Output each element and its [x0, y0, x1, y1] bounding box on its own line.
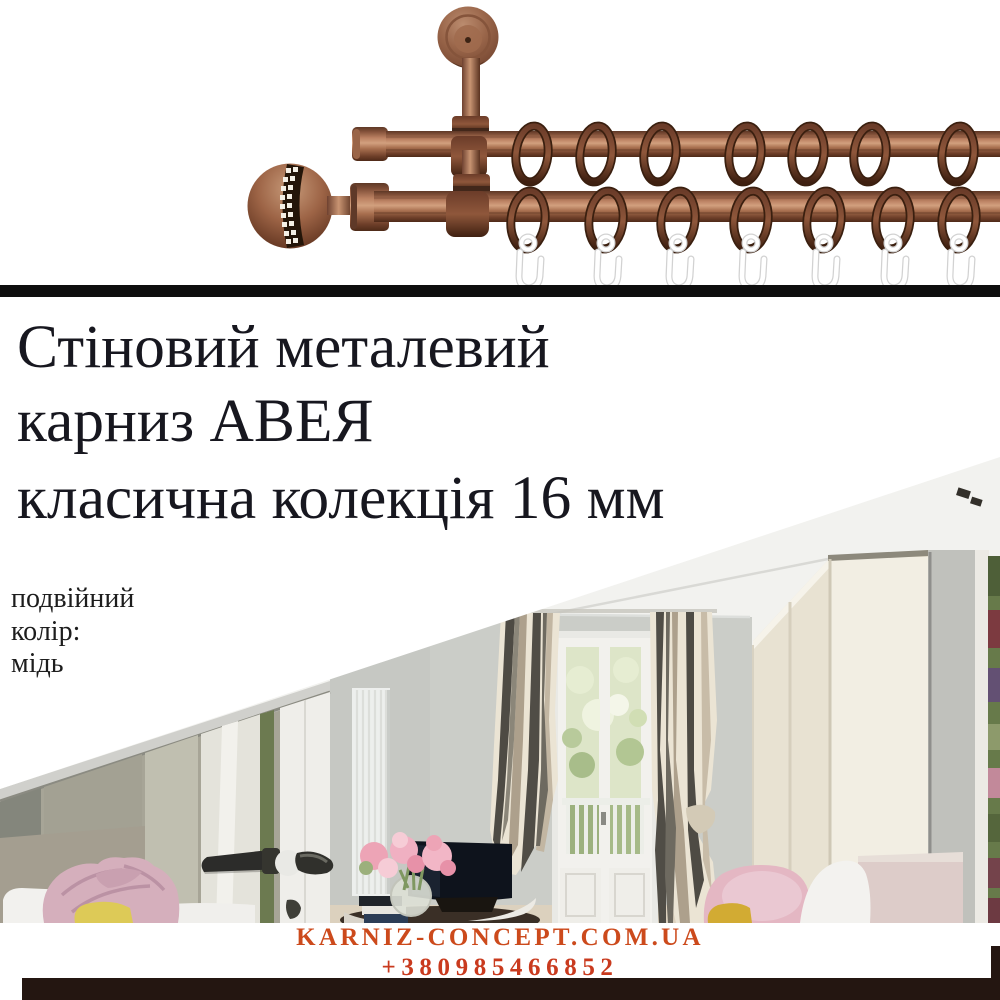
svg-text:карниз АВЕЯ: карниз АВЕЯ	[17, 387, 374, 455]
svg-text:Стіновий металевий: Стіновий металевий	[17, 313, 550, 381]
svg-text:подвійний: подвійний	[11, 583, 134, 614]
svg-text:класична колекція 16 мм: класична колекція 16 мм	[17, 464, 665, 532]
svg-text:KARNIZ-CONCEPT.COM.UA: KARNIZ-CONCEPT.COM.UA	[296, 924, 704, 951]
svg-text:мідь: мідь	[11, 648, 64, 679]
svg-text:+380985466852: +380985466852	[381, 954, 618, 981]
svg-text:колір:: колір:	[11, 616, 80, 647]
